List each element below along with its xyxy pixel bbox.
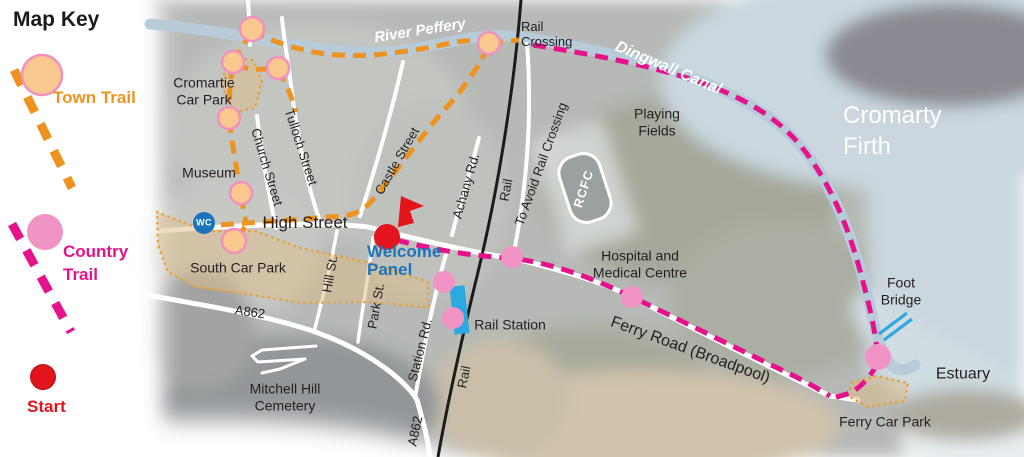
estuary-label: Estuary bbox=[936, 366, 990, 385]
country-stop bbox=[865, 344, 891, 370]
dingwall-trails-map: Map Key Town Trail Country Trail Start R… bbox=[0, 0, 1024, 457]
welcome-panel-label: Welcome Panel bbox=[367, 243, 441, 279]
wc-label: WC bbox=[196, 218, 212, 229]
country-stop bbox=[621, 286, 643, 308]
south-car-park-label: South Car Park bbox=[190, 260, 286, 277]
town-stop bbox=[230, 182, 252, 204]
country-stop bbox=[442, 307, 464, 329]
cromarty-firth-label: Cromarty Firth bbox=[843, 100, 942, 162]
legend-country-dot bbox=[27, 214, 63, 250]
high-street-label: High Street bbox=[262, 213, 347, 233]
legend-town-trail-label: Town Trail bbox=[53, 88, 136, 108]
hospital-medical-centre-label: Hospital and Medical Centre bbox=[593, 247, 687, 280]
playing-fields-label: Playing Fields bbox=[634, 105, 680, 138]
rail-crossing-label: Rail Crossing bbox=[521, 19, 572, 50]
country-stop bbox=[501, 246, 523, 268]
legend-country-trail-label: Country Trail bbox=[63, 241, 128, 287]
legend-start-dot bbox=[31, 365, 55, 389]
town-stop bbox=[218, 107, 240, 129]
rail-station-label: Rail Station bbox=[474, 317, 546, 334]
town-stop bbox=[240, 17, 264, 41]
cromartie-car-park-label: Cromartie Car Park bbox=[173, 74, 234, 107]
map-canvas bbox=[0, 0, 1024, 457]
town-stop bbox=[478, 32, 500, 54]
map-key-title: Map Key bbox=[13, 8, 99, 32]
foot-bridge-label: Foot Bridge bbox=[881, 274, 921, 307]
legend-start-label: Start bbox=[27, 397, 66, 417]
town-stop bbox=[267, 57, 289, 79]
town-stop bbox=[222, 51, 244, 73]
town-stop bbox=[222, 229, 246, 253]
mitchell-hill-cemetery-label: Mitchell Hill Cemetery bbox=[250, 380, 321, 413]
museum-label: Museum bbox=[182, 165, 236, 182]
ferry-car-park-label: Ferry Car Park bbox=[839, 414, 931, 431]
